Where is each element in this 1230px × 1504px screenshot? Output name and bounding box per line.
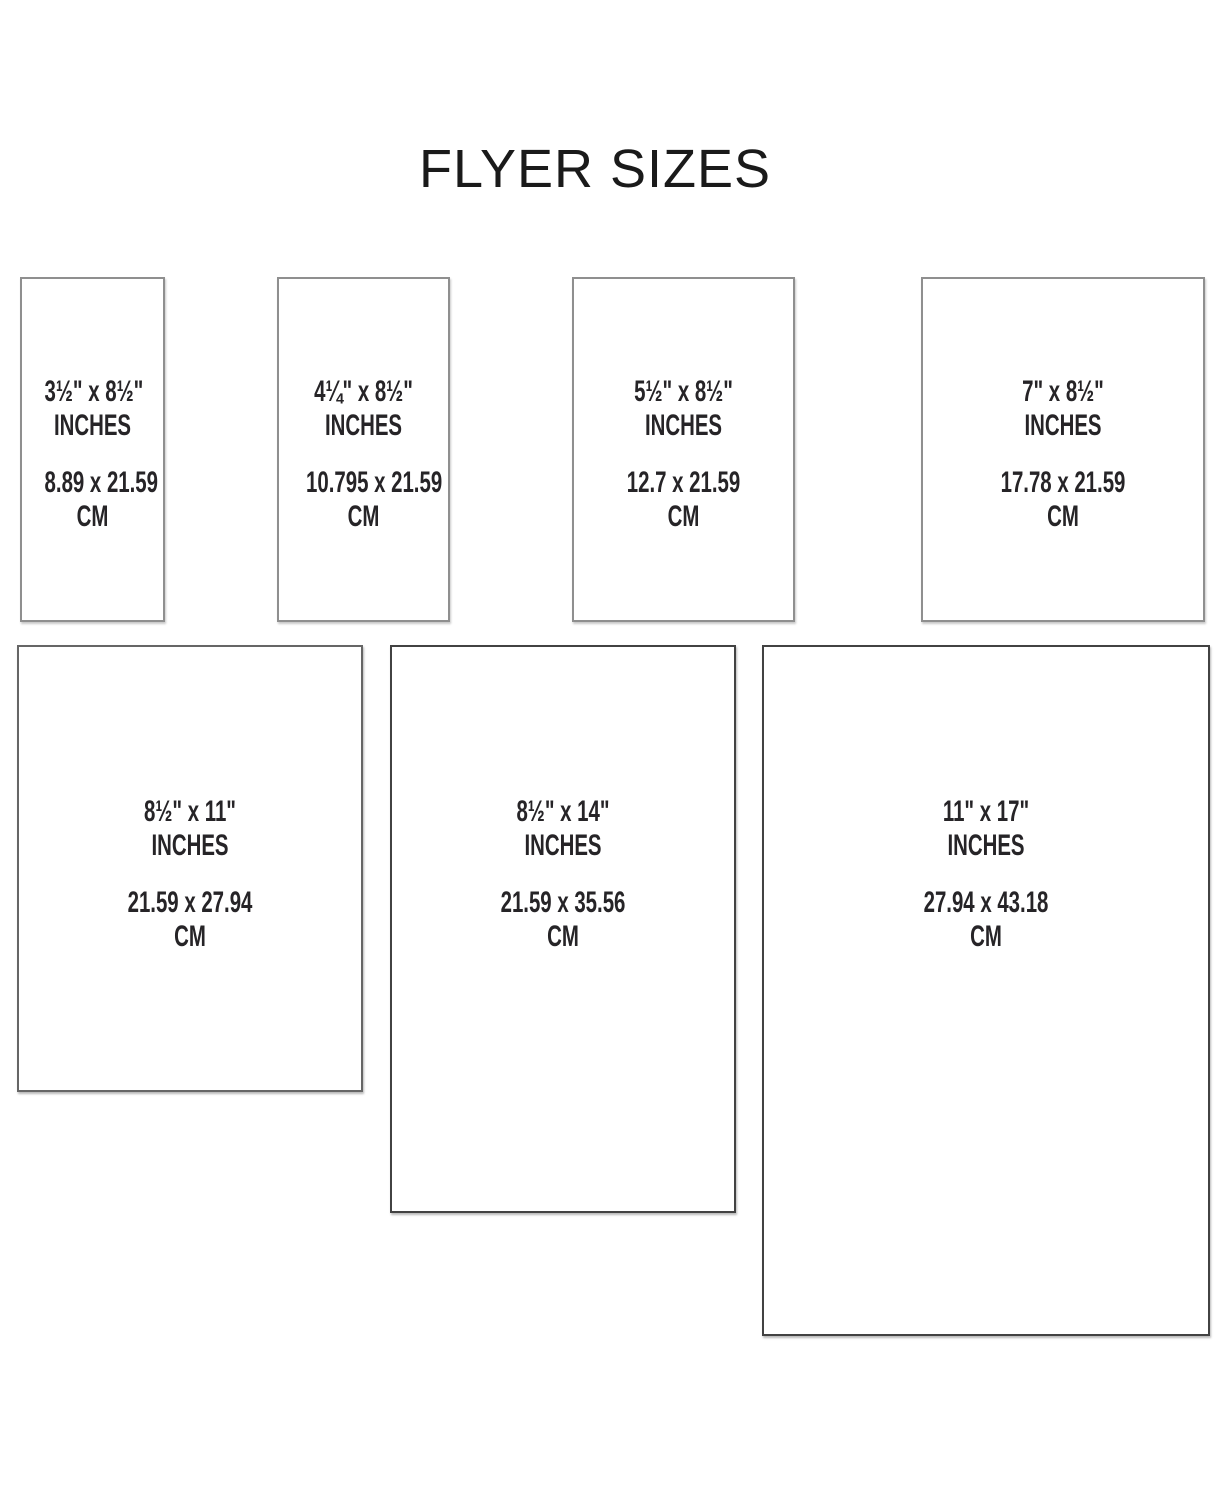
flyer-sizes-diagram: FLYER SIZES 3½" x 8½" INCHES 8.89 x 21.5… <box>0 0 1230 1504</box>
cm-unit: CM <box>835 920 1137 954</box>
flyer-size-label: 3½" x 8½" INCHES 8.89 x 21.59 CM <box>45 375 141 534</box>
flyer-card-8-5x14: 8½" x 14" INCHES 21.59 x 35.56 CM <box>390 645 736 1213</box>
cm-unit: CM <box>74 920 307 954</box>
inch-unit: INCHES <box>306 409 421 443</box>
flyer-size-label: 8½" x 14" INCHES 21.59 x 35.56 CM <box>447 795 680 954</box>
cm-dimensions: 17.78 x 21.59 <box>968 466 1158 500</box>
inch-dimensions: 8½" x 14" <box>447 795 680 829</box>
flyer-card-11x17: 11" x 17" INCHES 27.94 x 43.18 CM <box>762 645 1210 1336</box>
cm-dimensions: 21.59 x 35.56 <box>447 886 680 920</box>
page-title: FLYER SIZES <box>0 138 1230 200</box>
flyer-card-3-5x8-5: 3½" x 8½" INCHES 8.89 x 21.59 CM <box>20 277 165 622</box>
inch-unit: INCHES <box>447 829 680 863</box>
inch-dimensions: 3½" x 8½" <box>45 375 141 409</box>
cm-unit: CM <box>968 500 1158 534</box>
cm-dimensions: 21.59 x 27.94 <box>74 886 307 920</box>
cm-unit: CM <box>447 920 680 954</box>
flyer-card-7x8-5: 7" x 8½" INCHES 17.78 x 21.59 CM <box>921 277 1205 622</box>
flyer-size-label: 8½" x 11" INCHES 21.59 x 27.94 CM <box>74 795 307 954</box>
flyer-card-8-5x11: 8½" x 11" INCHES 21.59 x 27.94 CM <box>17 645 363 1092</box>
cm-dimensions: 8.89 x 21.59 <box>45 466 141 500</box>
inch-unit: INCHES <box>609 409 758 443</box>
inch-unit: INCHES <box>835 829 1137 863</box>
inch-dimensions: 4¼" x 8½" <box>306 375 421 409</box>
flyer-size-label: 4¼" x 8½" INCHES 10.795 x 21.59 CM <box>306 375 421 534</box>
flyer-size-label: 5½" x 8½" INCHES 12.7 x 21.59 CM <box>609 375 758 534</box>
cm-unit: CM <box>45 500 141 534</box>
flyer-card-5-5x8-5: 5½" x 8½" INCHES 12.7 x 21.59 CM <box>572 277 795 622</box>
flyer-card-4-25x8-5: 4¼" x 8½" INCHES 10.795 x 21.59 CM <box>277 277 450 622</box>
cm-dimensions: 27.94 x 43.18 <box>835 886 1137 920</box>
inch-unit: INCHES <box>968 409 1158 443</box>
flyer-size-label: 7" x 8½" INCHES 17.78 x 21.59 CM <box>968 375 1158 534</box>
cm-unit: CM <box>306 500 421 534</box>
inch-dimensions: 11" x 17" <box>835 795 1137 829</box>
cm-dimensions: 10.795 x 21.59 <box>306 466 421 500</box>
flyer-size-label: 11" x 17" INCHES 27.94 x 43.18 CM <box>835 795 1137 954</box>
cm-unit: CM <box>609 500 758 534</box>
inch-unit: INCHES <box>45 409 141 443</box>
cm-dimensions: 12.7 x 21.59 <box>609 466 758 500</box>
inch-dimensions: 7" x 8½" <box>968 375 1158 409</box>
inch-dimensions: 8½" x 11" <box>74 795 307 829</box>
inch-unit: INCHES <box>74 829 307 863</box>
inch-dimensions: 5½" x 8½" <box>609 375 758 409</box>
